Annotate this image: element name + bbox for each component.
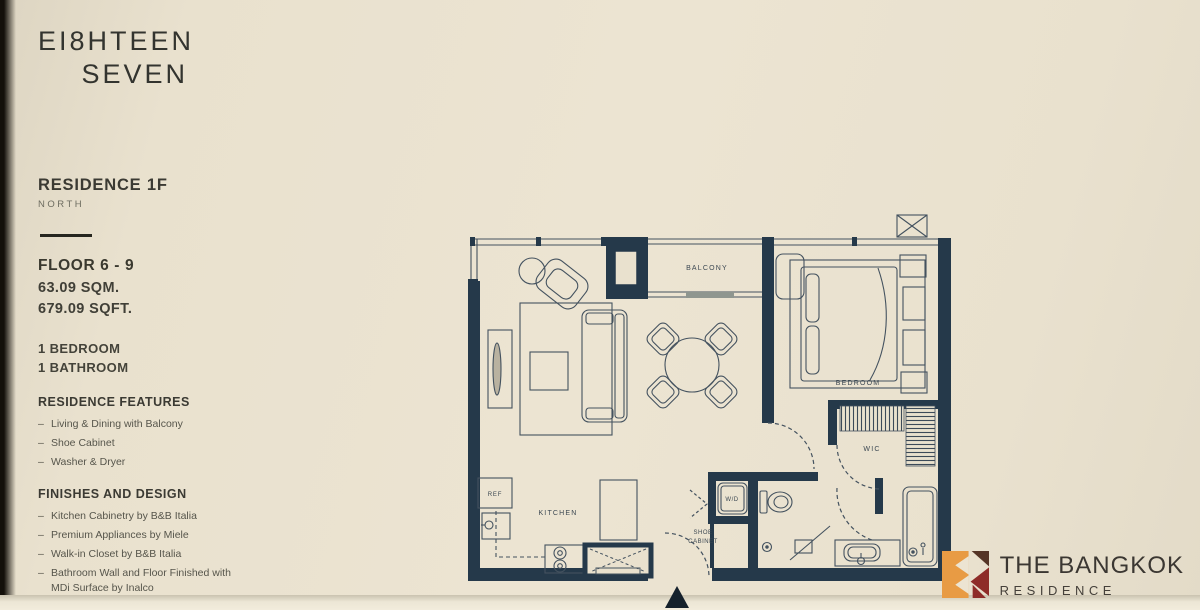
pier-window (615, 251, 637, 285)
residence-title: RESIDENCE 1F (38, 176, 258, 195)
project-logotype-line2: SEVEN (38, 59, 188, 90)
orientation-label: NORTH (38, 199, 258, 210)
ac-ledge-box (897, 215, 927, 237)
area-sqm: 63.09 SQM. (38, 280, 258, 296)
photo-edge-left (0, 0, 16, 610)
label-ref: REF (488, 492, 502, 498)
label-wd: W/D (725, 497, 738, 503)
project-logotype-line1: EI8HTEEN (38, 26, 188, 57)
area-sqft: 679.09 SQFT. (38, 301, 258, 317)
label-kitchen: KITCHEN (538, 510, 577, 517)
floor-range: FLOOR 6 - 9 (38, 257, 258, 275)
finish-item: Kitchen Cabinetry by B&B Italia (38, 509, 238, 525)
floor-plan: BALCONY BEDROOM WIC KITCHEN REF W/D SHOE… (460, 195, 965, 610)
unit-info-panel: RESIDENCE 1F NORTH FLOOR 6 - 9 63.09 SQM… (38, 176, 258, 610)
finishes-list: Kitchen Cabinetry by B&B Italia Premium … (38, 509, 258, 597)
bed (801, 267, 897, 381)
sofa (582, 310, 627, 422)
divider-line (40, 234, 92, 237)
sliding-door-panel (686, 292, 734, 298)
features-list: Living & Dining with Balcony Shoe Cabine… (38, 417, 258, 470)
vanity-sink (835, 540, 900, 566)
rug (520, 303, 612, 435)
label-bedroom: BEDROOM (836, 380, 881, 387)
bathtub (903, 487, 937, 566)
shaft-box (585, 545, 651, 576)
feature-item: Shoe Cabinet (38, 436, 238, 452)
agency-subtitle: RESIDENCE (1000, 583, 1184, 598)
shelf-unit (903, 287, 925, 320)
agency-logo-text: THE BANGKOK RESIDENCE (1000, 552, 1184, 598)
project-logotype: EI8HTEEN SEVEN (38, 26, 188, 90)
label-wic: WIC (863, 446, 880, 453)
nightstand (900, 255, 926, 277)
agency-logo-mark (942, 551, 989, 598)
bed-rug (790, 260, 925, 388)
shelf-unit (903, 330, 925, 365)
kitchen-island (600, 480, 637, 540)
dining-set (645, 321, 740, 411)
coffee-table (530, 352, 568, 390)
agency-name: THE BANGKOK (1000, 552, 1184, 580)
entrance-marker (665, 586, 689, 608)
bathroom-count: 1 BATHROOM (38, 360, 258, 375)
finish-item: Premium Appliances by Miele (38, 528, 238, 544)
tv-console (488, 330, 512, 408)
agency-logo: THE BANGKOK RESIDENCE (942, 551, 1184, 598)
wic-closet (840, 406, 935, 466)
room-labels: BALCONY BEDROOM WIC KITCHEN REF W/D SHOE… (488, 265, 881, 545)
features-title: RESIDENCE FEATURES (38, 395, 258, 409)
bedroom-count: 1 BEDROOM (38, 341, 258, 356)
feature-item: Living & Dining with Balcony (38, 417, 238, 433)
label-shoe-1: SHOE (693, 530, 712, 536)
nightstand (901, 372, 927, 393)
armchair (532, 255, 592, 313)
finish-item: Bathroom Wall and Floor Finished with MD… (38, 566, 238, 598)
counter-dashed (496, 511, 545, 557)
bedroom-furniture (776, 254, 927, 393)
label-balcony: BALCONY (686, 265, 728, 272)
shower (763, 526, 831, 560)
finishes-title: FINISHES AND DESIGN (38, 487, 258, 501)
feature-item: Washer & Dryer (38, 455, 238, 471)
brochure-page: EI8HTEEN SEVEN RESIDENCE 1F NORTH FLOOR … (0, 0, 1200, 610)
label-shoe-2: CABINET (688, 539, 718, 545)
finish-item: Walk-in Closet by B&B Italia (38, 547, 238, 563)
toilet (760, 491, 792, 513)
